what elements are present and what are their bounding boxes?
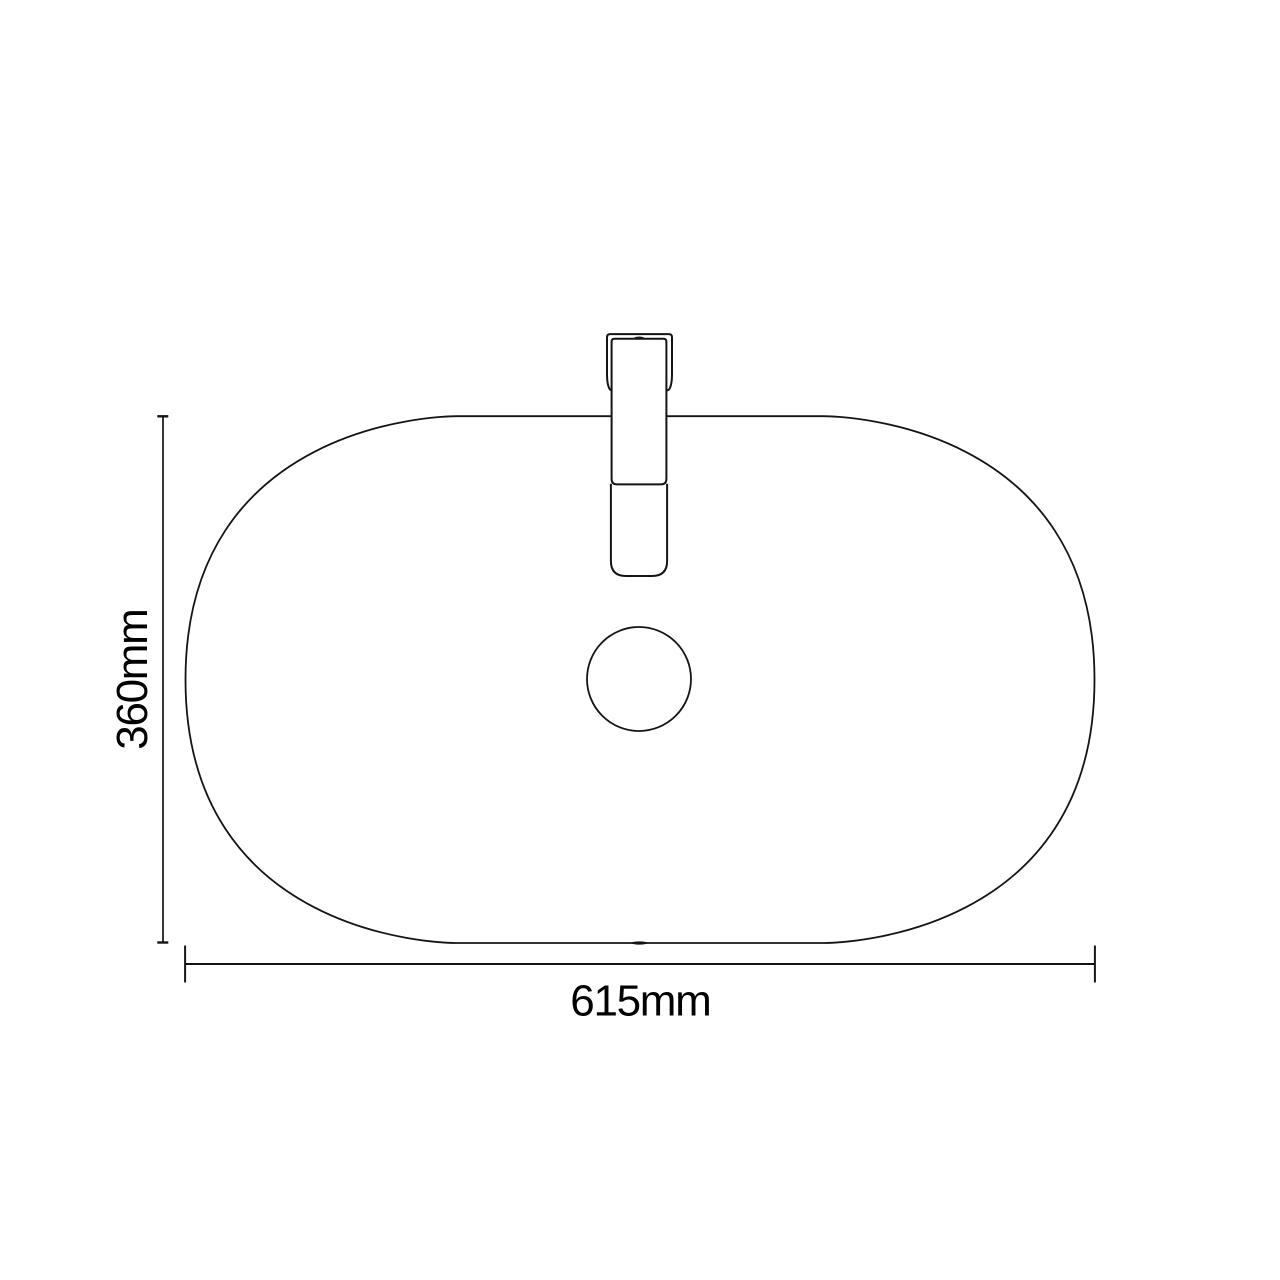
svg-text:360mm: 360mm xyxy=(108,609,157,749)
svg-text:615mm: 615mm xyxy=(570,977,710,1026)
